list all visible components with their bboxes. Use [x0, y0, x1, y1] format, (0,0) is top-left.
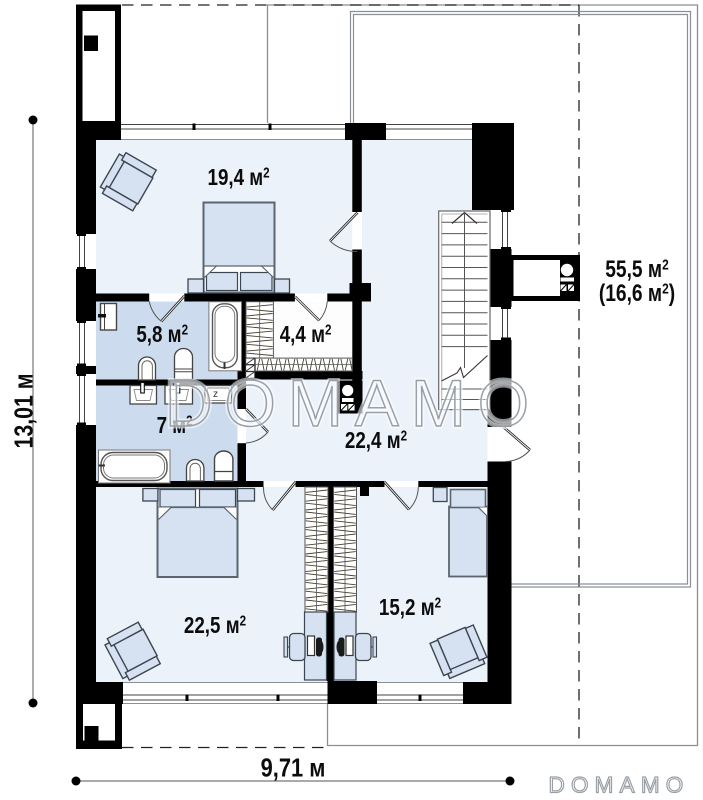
svg-text:15,2 м2: 15,2 м2	[379, 594, 441, 621]
svg-text:19,4 м2: 19,4 м2	[208, 164, 270, 191]
svg-text:9,71 м: 9,71 м	[261, 754, 326, 783]
svg-text:5,8 м2: 5,8 м2	[136, 321, 188, 348]
svg-text:DOMAMO: DOMAMO	[549, 773, 690, 798]
svg-text:4,4 м2: 4,4 м2	[280, 321, 332, 348]
svg-text:13,01 м: 13,01 м	[10, 373, 40, 448]
svg-text:DOMAMO: DOMAMO	[165, 366, 541, 440]
svg-text:22,5 м2: 22,5 м2	[184, 612, 246, 639]
